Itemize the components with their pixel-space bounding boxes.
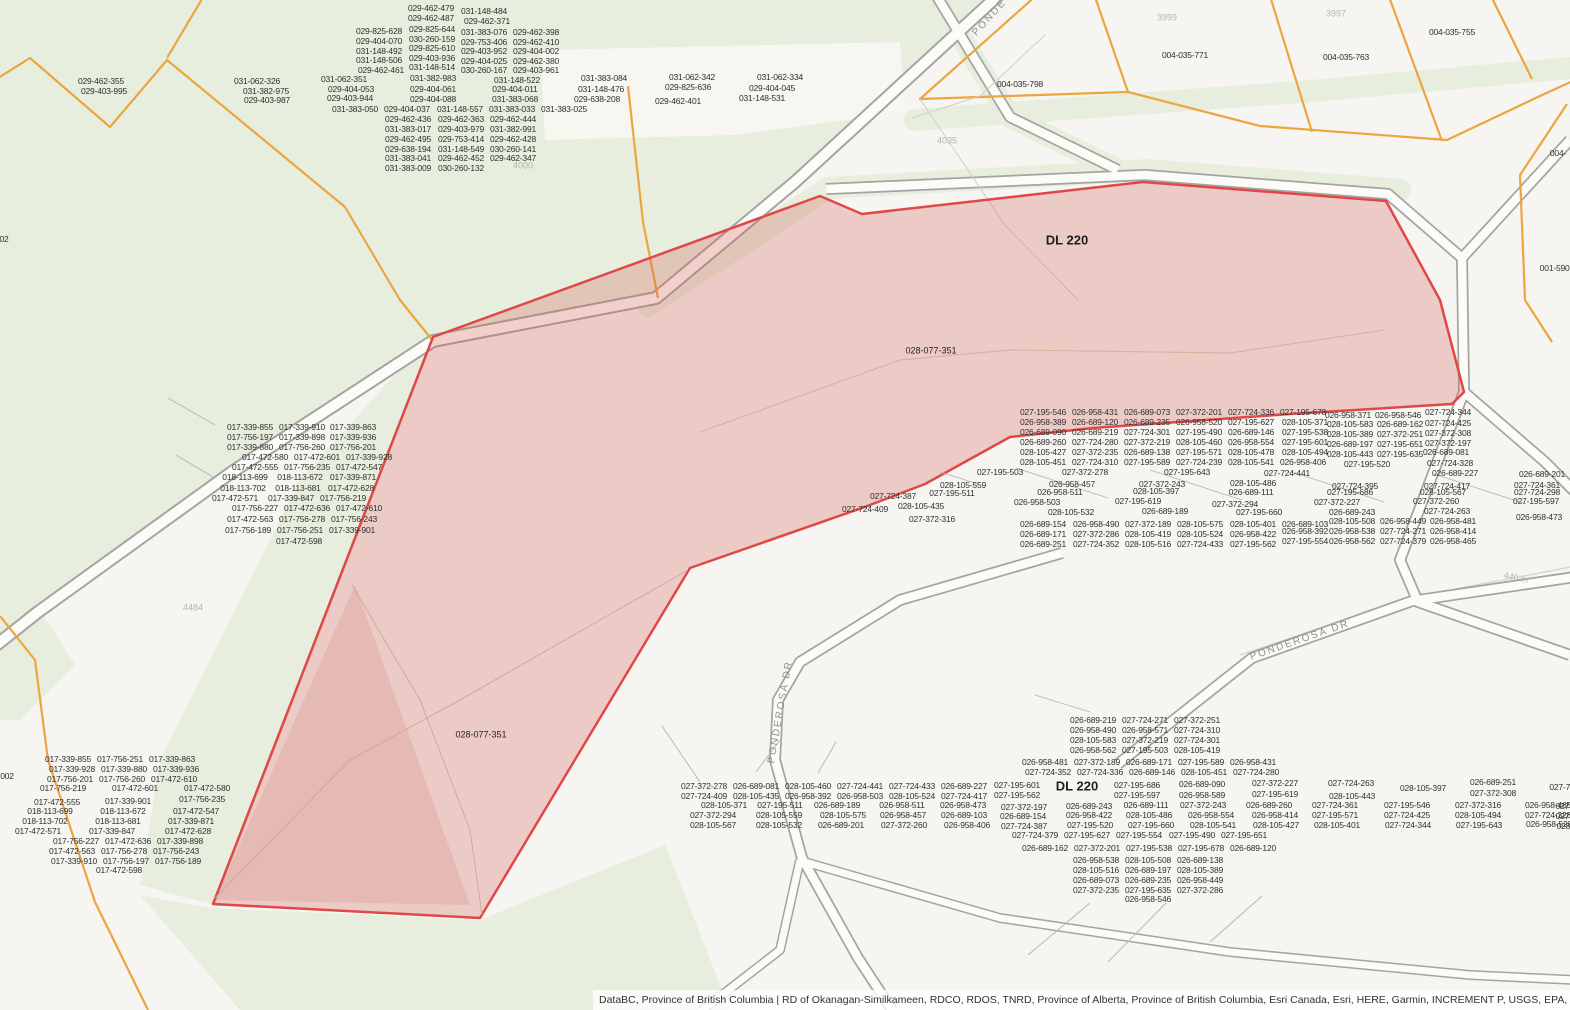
- attribution-bar: DataBC, Province of British Columbia | R…: [593, 990, 1570, 1010]
- road-fill: [1118, 577, 1570, 764]
- road-ponderosa-right: [1118, 577, 1570, 764]
- road-fill: [1462, 140, 1570, 258]
- parcel-boundary-orange: [1094, 0, 1128, 92]
- road-fill: [1464, 392, 1570, 492]
- map-stage[interactable]: 029-462-479031-148-484029-462-487029-462…: [0, 0, 1570, 1010]
- parcel-boundary-orange: [1270, 0, 1312, 132]
- road-east-descent: [1400, 392, 1570, 655]
- road-bottom-connector: [805, 862, 1570, 980]
- map-canvas: [0, 0, 1570, 1010]
- road-fill: [1400, 392, 1570, 655]
- road-fill: [775, 553, 1062, 1010]
- attribution-text: DataBC, Province of British Columbia | R…: [599, 994, 1570, 1006]
- road-ponderosa-middle: [775, 553, 1062, 1010]
- parcel-boundary-orange: [1520, 104, 1567, 342]
- road-fill: [805, 862, 1570, 980]
